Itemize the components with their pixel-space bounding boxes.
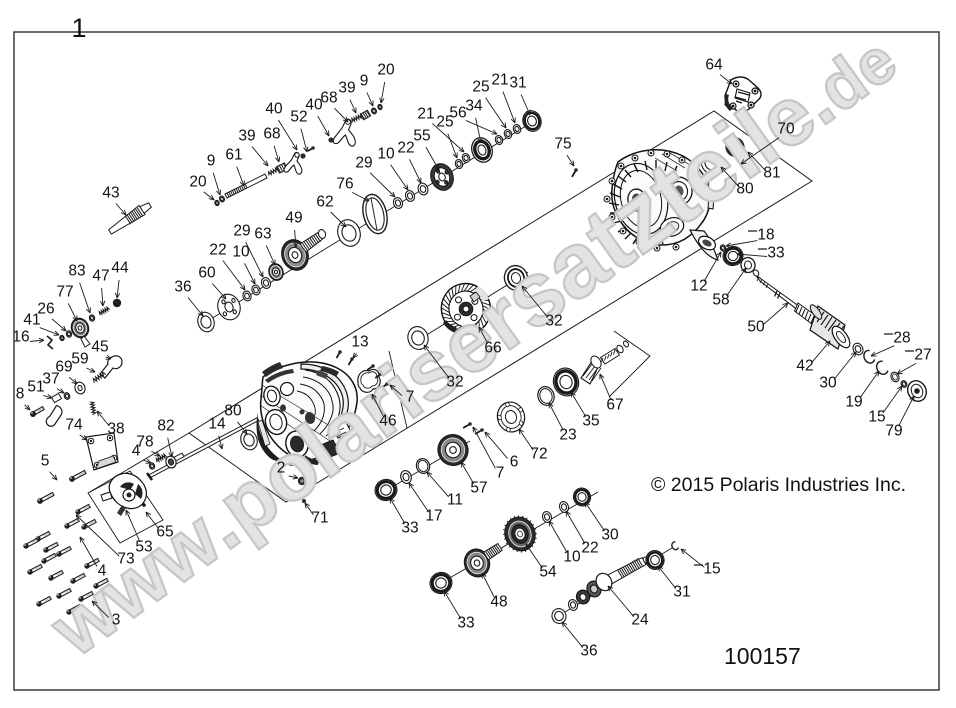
svg-text:25: 25 xyxy=(472,79,489,96)
svg-text:63: 63 xyxy=(254,226,271,243)
svg-text:33: 33 xyxy=(767,245,784,262)
svg-text:54: 54 xyxy=(539,564,557,581)
svg-text:80: 80 xyxy=(224,403,242,420)
svg-text:83: 83 xyxy=(68,263,85,280)
svg-text:59: 59 xyxy=(71,351,88,368)
svg-text:53: 53 xyxy=(135,539,152,556)
svg-text:8: 8 xyxy=(16,386,25,403)
svg-text:28: 28 xyxy=(893,330,910,347)
svg-text:82: 82 xyxy=(157,418,174,435)
svg-text:9: 9 xyxy=(207,153,216,170)
svg-text:65: 65 xyxy=(156,524,173,541)
svg-text:31: 31 xyxy=(673,584,690,601)
svg-text:60: 60 xyxy=(198,265,216,282)
svg-text:7: 7 xyxy=(496,465,505,482)
svg-text:1: 1 xyxy=(71,13,86,43)
svg-text:15: 15 xyxy=(868,409,885,426)
svg-text:68: 68 xyxy=(263,126,280,143)
svg-text:33: 33 xyxy=(457,615,474,632)
svg-text:75: 75 xyxy=(554,136,571,153)
svg-text:44: 44 xyxy=(111,260,129,277)
svg-text:71: 71 xyxy=(311,510,328,527)
svg-text:10: 10 xyxy=(563,549,581,566)
svg-text:32: 32 xyxy=(545,313,562,330)
svg-text:30: 30 xyxy=(601,527,619,544)
svg-text:21: 21 xyxy=(491,72,508,89)
svg-text:58: 58 xyxy=(712,292,729,309)
svg-text:29: 29 xyxy=(355,155,372,172)
svg-text:24: 24 xyxy=(631,612,649,629)
svg-text:21: 21 xyxy=(417,106,434,123)
svg-text:27: 27 xyxy=(914,347,931,364)
svg-text:48: 48 xyxy=(490,594,507,611)
svg-text:56: 56 xyxy=(449,105,466,122)
svg-text:23: 23 xyxy=(559,427,576,444)
svg-text:39: 39 xyxy=(238,128,255,145)
svg-text:70: 70 xyxy=(777,121,795,138)
svg-text:50: 50 xyxy=(747,319,765,336)
svg-text:40: 40 xyxy=(265,101,283,118)
svg-text:43: 43 xyxy=(102,185,119,202)
svg-text:9: 9 xyxy=(360,73,369,90)
svg-text:76: 76 xyxy=(336,176,353,193)
svg-text:61: 61 xyxy=(225,147,242,164)
svg-text:16: 16 xyxy=(12,329,29,346)
svg-text:38: 38 xyxy=(107,421,124,438)
svg-text:57: 57 xyxy=(470,480,487,497)
svg-text:36: 36 xyxy=(580,643,597,660)
svg-text:37: 37 xyxy=(42,371,59,388)
svg-text:46: 46 xyxy=(379,413,396,430)
svg-text:35: 35 xyxy=(582,413,599,430)
svg-text:62: 62 xyxy=(316,194,333,211)
svg-text:100157: 100157 xyxy=(724,643,801,669)
svg-text:22: 22 xyxy=(581,540,598,557)
svg-text:47: 47 xyxy=(92,268,109,285)
svg-text:81: 81 xyxy=(763,165,780,182)
svg-text:22: 22 xyxy=(209,242,226,259)
svg-text:41: 41 xyxy=(23,312,40,329)
svg-text:3: 3 xyxy=(112,612,121,629)
svg-text:36: 36 xyxy=(174,279,191,296)
svg-text:19: 19 xyxy=(845,394,862,411)
svg-text:51: 51 xyxy=(27,379,44,396)
svg-text:45: 45 xyxy=(91,339,108,356)
svg-text:64: 64 xyxy=(705,57,723,74)
svg-text:17: 17 xyxy=(425,508,442,525)
svg-text:4: 4 xyxy=(132,443,141,460)
svg-text:66: 66 xyxy=(484,340,501,357)
svg-text:12: 12 xyxy=(690,278,707,295)
svg-text:33: 33 xyxy=(401,520,418,537)
svg-text:11: 11 xyxy=(447,492,463,509)
svg-text:10: 10 xyxy=(377,146,395,163)
svg-text:39: 39 xyxy=(338,80,355,97)
svg-text:18: 18 xyxy=(757,227,774,244)
svg-text:2: 2 xyxy=(277,460,286,477)
svg-text:30: 30 xyxy=(819,375,837,392)
svg-text:6: 6 xyxy=(510,454,519,471)
svg-text:20: 20 xyxy=(377,62,395,79)
svg-text:42: 42 xyxy=(796,358,813,375)
svg-text:80: 80 xyxy=(736,181,754,198)
svg-text:10: 10 xyxy=(232,244,250,261)
svg-text:© 2015 Polaris Industries Inc.: © 2015 Polaris Industries Inc. xyxy=(651,474,906,496)
svg-text:7: 7 xyxy=(406,389,415,406)
svg-text:29: 29 xyxy=(233,223,250,240)
svg-text:79: 79 xyxy=(885,423,902,440)
svg-text:22: 22 xyxy=(397,140,414,157)
svg-text:68: 68 xyxy=(320,90,337,107)
svg-text:20: 20 xyxy=(189,174,207,191)
svg-text:49: 49 xyxy=(285,210,302,227)
svg-text:14: 14 xyxy=(208,416,226,433)
svg-text:74: 74 xyxy=(65,417,83,434)
svg-text:73: 73 xyxy=(117,551,134,568)
svg-text:55: 55 xyxy=(413,128,430,145)
svg-text:34: 34 xyxy=(465,98,483,115)
svg-text:5: 5 xyxy=(41,453,50,470)
svg-text:13: 13 xyxy=(351,334,368,351)
svg-text:67: 67 xyxy=(606,397,623,414)
svg-text:15: 15 xyxy=(703,561,720,578)
svg-text:4: 4 xyxy=(98,563,107,580)
svg-text:32: 32 xyxy=(446,374,463,391)
svg-text:77: 77 xyxy=(56,284,73,301)
svg-text:72: 72 xyxy=(530,446,547,463)
svg-text:31: 31 xyxy=(509,75,526,92)
